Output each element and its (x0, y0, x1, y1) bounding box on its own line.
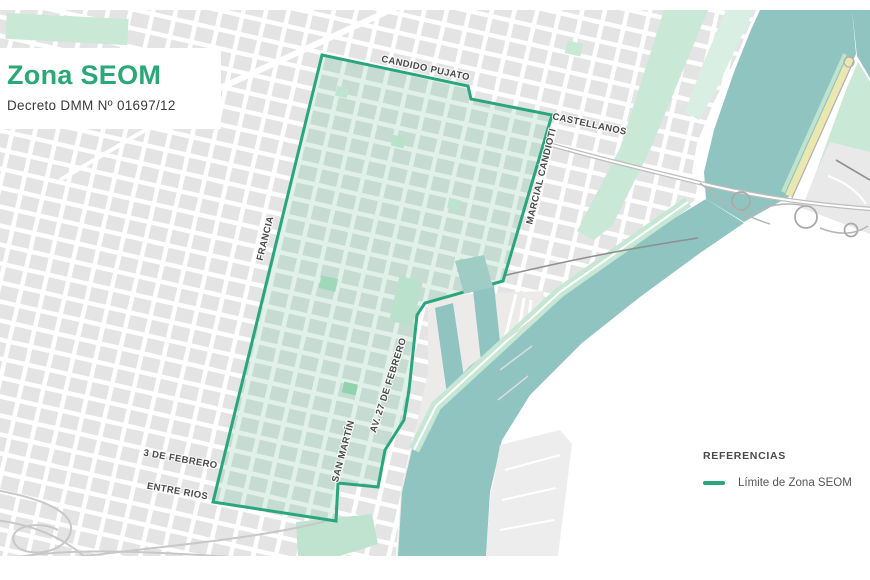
zone-title: Zona SEOM (7, 60, 197, 91)
title-card: Zona SEOM Decreto DMM Nº 01697/12 (0, 48, 221, 129)
legend-line-swatch (703, 481, 725, 485)
legend-heading: REFERENCIAS (703, 450, 868, 462)
legend-item: Límite de Zona SEOM (703, 477, 868, 489)
zone-decree: Decreto DMM Nº 01697/12 (7, 98, 197, 113)
legend: REFERENCIAS Límite de Zona SEOM (703, 450, 868, 489)
legend-item-label: Límite de Zona SEOM (738, 477, 852, 489)
